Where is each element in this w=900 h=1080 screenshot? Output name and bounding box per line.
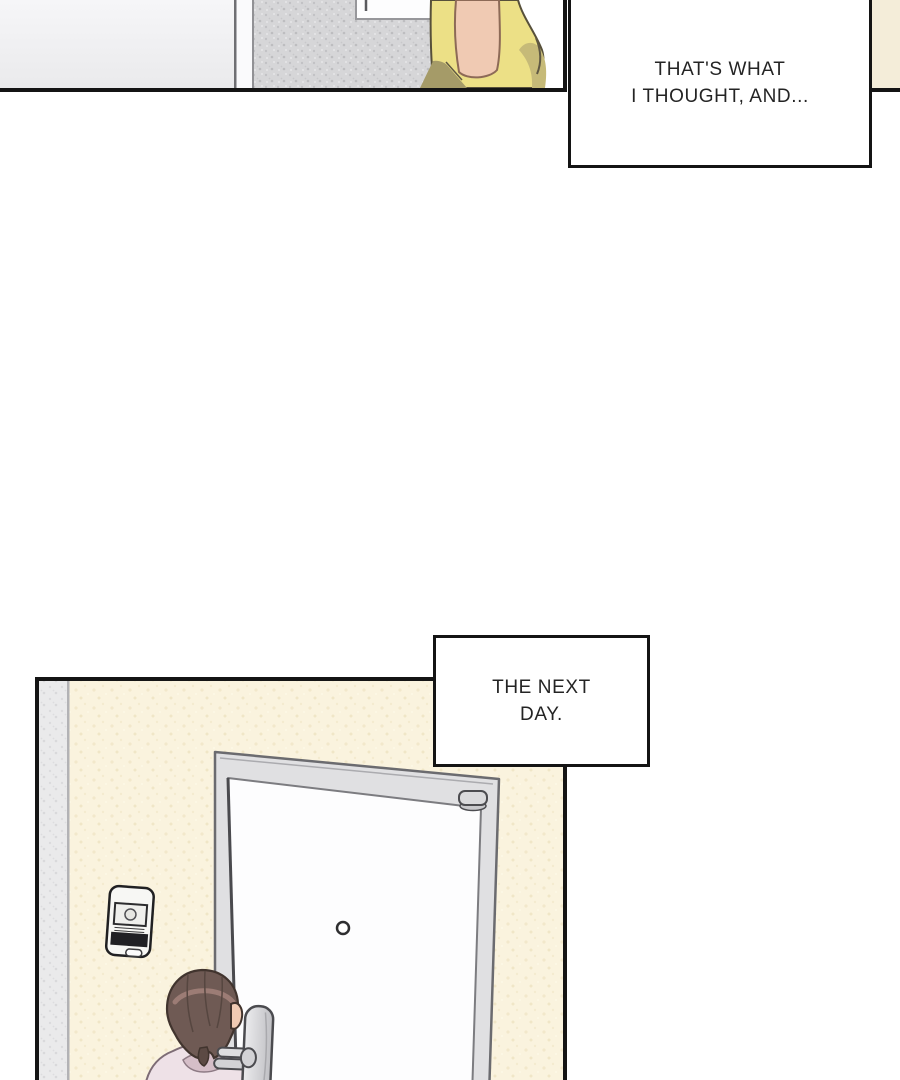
top-panel-scene xyxy=(0,0,563,88)
caption-box-next-day: THE NEXT DAY. xyxy=(433,635,650,767)
intercom-camera-lens xyxy=(125,909,137,921)
wall-corner-line xyxy=(234,0,237,88)
intercom-band xyxy=(110,932,148,948)
lock-body xyxy=(242,1006,274,1080)
window-frame xyxy=(356,0,432,19)
caption-line: I THOUGHT, AND... xyxy=(631,83,809,110)
panel-top-left xyxy=(0,0,567,92)
lock-handle-boss xyxy=(241,1048,257,1068)
door-jamb-strip xyxy=(237,0,253,88)
wall-edge-strip xyxy=(39,681,70,1080)
character-standing xyxy=(420,0,546,88)
caption-line: DAY. xyxy=(520,701,563,728)
hair-tail xyxy=(198,1047,208,1066)
intercom-panel xyxy=(106,886,155,958)
caption-line: THE NEXT xyxy=(492,674,591,701)
wall-plain xyxy=(0,0,236,88)
person-ear xyxy=(231,1003,242,1029)
comic-page: THAT'S WHAT I THOUGHT, AND... xyxy=(0,0,900,1080)
panel-fragment-top-right xyxy=(869,0,900,92)
intercom-button xyxy=(126,949,142,957)
door-peephole xyxy=(337,922,349,934)
caption-box-thought: THAT'S WHAT I THOUGHT, AND... xyxy=(568,0,872,168)
door-hinge xyxy=(459,791,487,811)
character-arm xyxy=(455,0,500,77)
caption-line: THAT'S WHAT xyxy=(655,56,786,83)
